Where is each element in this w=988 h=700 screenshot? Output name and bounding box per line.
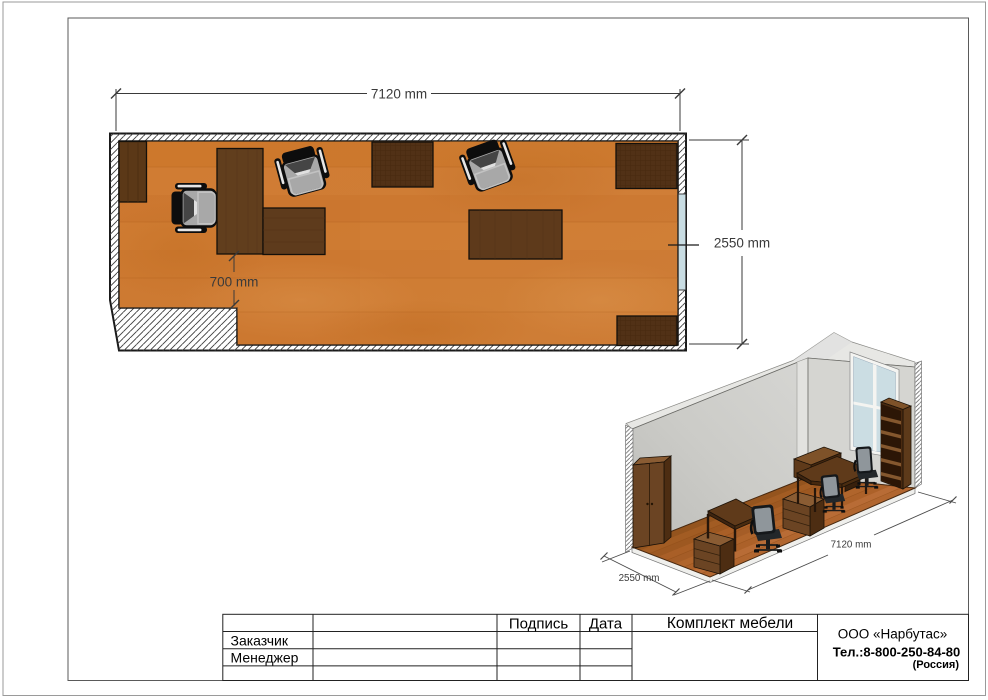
svg-text:2550 mm: 2550 mm [714, 236, 770, 251]
svg-text:Менеджер: Менеджер [231, 650, 299, 666]
svg-text:7120 mm: 7120 mm [831, 540, 872, 551]
svg-text:2550 mm: 2550 mm [619, 573, 660, 584]
svg-text:Тел.:8-800-250-84-80: Тел.:8-800-250-84-80 [833, 645, 961, 660]
svg-text:Дата: Дата [589, 616, 623, 633]
svg-text:Подпись: Подпись [509, 616, 569, 633]
svg-text:700 mm: 700 mm [210, 275, 259, 290]
svg-text:7120 mm: 7120 mm [371, 87, 427, 102]
svg-text:(Россия): (Россия) [913, 659, 960, 671]
svg-text:Комплект мебели: Комплект мебели [667, 615, 793, 632]
svg-text:ООО «Нарбутас»: ООО «Нарбутас» [838, 627, 948, 642]
svg-text:Заказчик: Заказчик [231, 633, 289, 649]
